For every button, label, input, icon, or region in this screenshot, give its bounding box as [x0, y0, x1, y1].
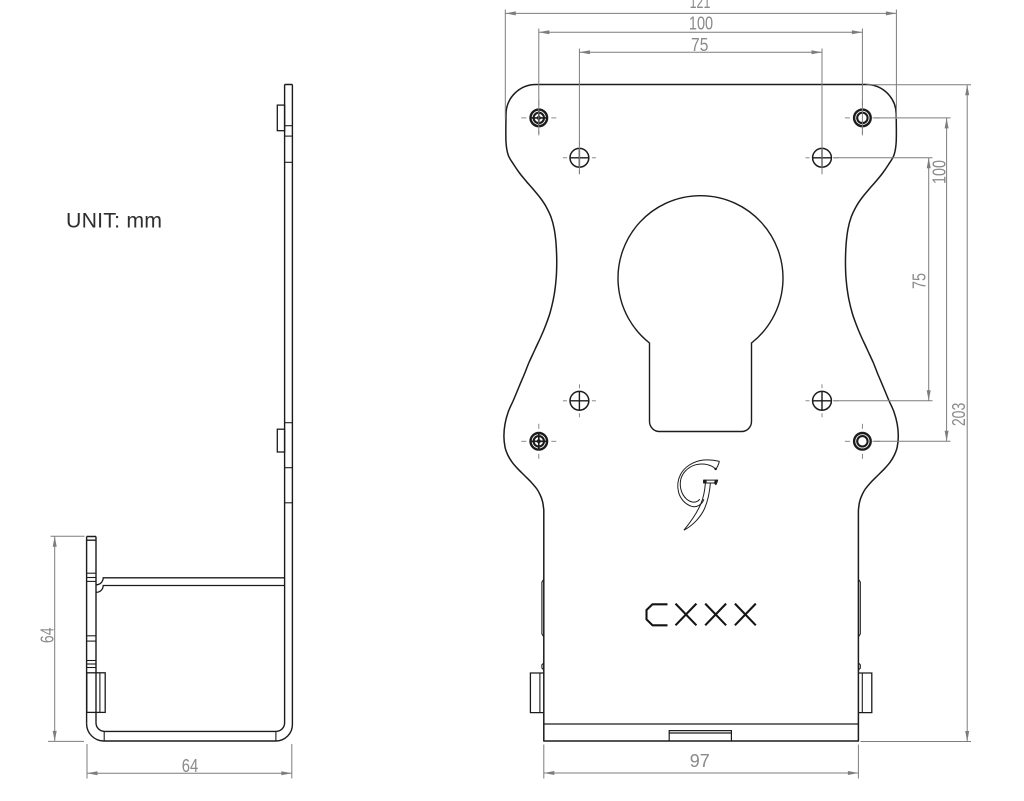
svg-text:UNIT: mm: UNIT: mm: [66, 209, 162, 233]
svg-text:64: 64: [37, 628, 58, 644]
svg-text:75: 75: [691, 34, 708, 55]
svg-text:100: 100: [928, 160, 949, 184]
svg-text:97: 97: [690, 750, 710, 771]
svg-text:121: 121: [690, 0, 711, 12]
svg-text:100: 100: [689, 13, 713, 34]
svg-text:203: 203: [948, 403, 969, 427]
svg-text:64: 64: [182, 755, 199, 776]
svg-text:75: 75: [908, 273, 929, 289]
